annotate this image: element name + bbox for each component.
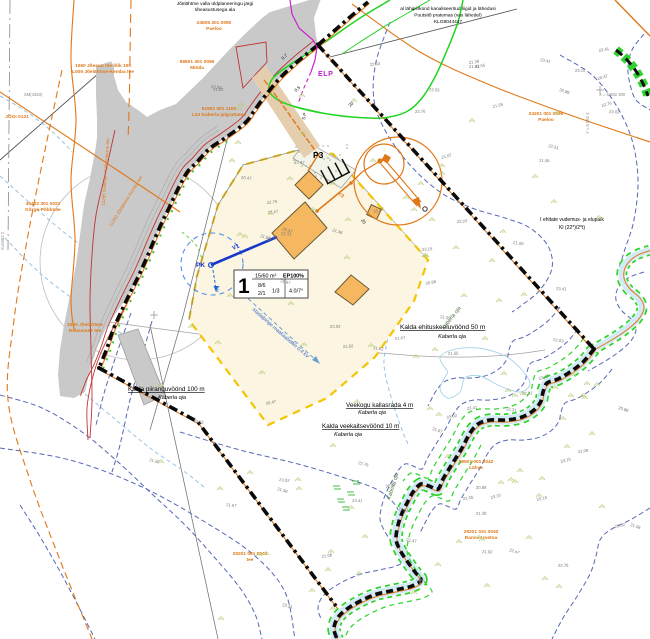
svg-text:23.41: 23.41 bbox=[352, 498, 363, 503]
svg-text:21.67: 21.67 bbox=[226, 502, 238, 508]
svg-text:21.92: 21.92 bbox=[343, 343, 354, 349]
svg-text:tiheasustusega ala: tiheasustusega ala bbox=[195, 7, 235, 13]
svg-text:Rebasmäe tee: Rebasmäe tee bbox=[69, 328, 102, 334]
svg-text:21.67: 21.67 bbox=[395, 335, 407, 341]
svg-text:P3: P3 bbox=[313, 150, 324, 160]
svg-text:22.03: 22.03 bbox=[457, 218, 468, 224]
svg-text:29201 031 0040: 29201 031 0040 bbox=[464, 529, 499, 535]
svg-text:1060 Jõesuu tee lõik 100: 1060 Jõesuu tee lõik 100 bbox=[75, 63, 131, 69]
svg-text:Kaberla oja: Kaberla oja bbox=[358, 410, 386, 416]
svg-text:21.67: 21.67 bbox=[441, 152, 453, 160]
svg-text:1: 1 bbox=[238, 275, 250, 298]
svg-text:20.88: 20.88 bbox=[618, 405, 630, 413]
svg-text:21.67: 21.67 bbox=[432, 426, 444, 434]
svg-text:23.02: 23.02 bbox=[609, 109, 620, 114]
svg-text:36402 301 0022: 36402 301 0022 bbox=[26, 201, 61, 207]
svg-text:Kaberla oja: Kaberla oja bbox=[438, 334, 466, 340]
svg-text:b/o: b/o bbox=[215, 286, 220, 293]
svg-text:JÕGI 0131: JÕGI 0131 bbox=[5, 113, 29, 120]
svg-text:Kaberla oja: Kaberla oja bbox=[158, 395, 186, 401]
svg-text:23.15: 23.15 bbox=[575, 67, 586, 73]
svg-text:8/6: 8/6 bbox=[258, 283, 266, 289]
svg-text:KI (22*)/2*t): KI (22*)/2*t) bbox=[559, 225, 585, 231]
svg-text:X = 6 582 300: X = 6 582 300 bbox=[599, 92, 626, 97]
svg-text:2050 Jõelähtme: 2050 Jõelähtme bbox=[67, 322, 103, 328]
svg-text:23.02: 23.02 bbox=[330, 324, 341, 329]
svg-text:al lähipiirkond kanaliseeritud: al lähipiirkond kanaliseeritud liigid ja… bbox=[400, 6, 495, 12]
svg-text:KLG8044447: KLG8044447 bbox=[434, 19, 463, 25]
svg-text:22.31: 22.31 bbox=[522, 390, 533, 396]
svg-text:21.08: 21.08 bbox=[321, 552, 333, 559]
svg-text:22.31: 22.31 bbox=[281, 231, 292, 236]
svg-text:PK: PK bbox=[196, 262, 205, 269]
svg-text:Y = 6 582 4: Y = 6 582 4 bbox=[585, 112, 590, 134]
svg-text:29201 001 0043: 29201 001 0043 bbox=[233, 551, 268, 557]
svg-text:22.76: 22.76 bbox=[558, 563, 569, 568]
svg-text:23.41: 23.41 bbox=[556, 286, 567, 291]
svg-text:22.47: 22.47 bbox=[509, 547, 521, 555]
svg-text:21.08: 21.08 bbox=[513, 240, 525, 246]
svg-text:Kalda piiranguvöönd 100 m: Kalda piiranguvöönd 100 m bbox=[128, 386, 205, 393]
svg-text:X=6582 2: X=6582 2 bbox=[0, 231, 5, 250]
svg-text:23.41: 23.41 bbox=[540, 57, 552, 64]
svg-text:2/1: 2/1 bbox=[258, 291, 266, 297]
svg-text:23.02: 23.02 bbox=[614, 522, 626, 529]
svg-text:Jõelähtme valla üldplaneeringu: Jõelähtme valla üldplaneeringu järgi bbox=[177, 1, 254, 7]
svg-text:24505 301 0090: 24505 301 0090 bbox=[197, 20, 232, 26]
svg-text:S P: S P bbox=[301, 112, 307, 120]
svg-text:SM(4383): SM(4383) bbox=[24, 92, 43, 97]
svg-text:23.15: 23.15 bbox=[536, 495, 548, 502]
svg-text:22.31: 22.31 bbox=[282, 602, 294, 609]
svg-text:21.38: 21.38 bbox=[149, 457, 161, 465]
svg-text:23.15: 23.15 bbox=[422, 246, 434, 252]
svg-text:1/3: 1/3 bbox=[272, 289, 280, 295]
svg-text:0,5: 0,5 bbox=[293, 85, 301, 93]
svg-text:22.76: 22.76 bbox=[601, 100, 613, 108]
svg-text:Puutsitõ pratemas (vas lähedel: Puutsitõ pratemas (vas lähedel) bbox=[414, 13, 482, 19]
svg-text:21.55: 21.55 bbox=[448, 351, 459, 356]
svg-text:21.08: 21.08 bbox=[630, 522, 642, 530]
svg-text:22.03: 22.03 bbox=[370, 61, 382, 67]
svg-text:23.15: 23.15 bbox=[490, 492, 502, 500]
svg-text:20.88: 20.88 bbox=[211, 84, 223, 90]
svg-text:88501 301 0096: 88501 301 0096 bbox=[180, 59, 215, 65]
svg-text:23.15: 23.15 bbox=[560, 456, 572, 464]
svg-text:21.92: 21.92 bbox=[482, 549, 493, 555]
svg-text:Kaberla oja: Kaberla oja bbox=[334, 432, 362, 438]
svg-text:21.55: 21.55 bbox=[463, 495, 475, 501]
svg-text:21.55: 21.55 bbox=[440, 314, 452, 321]
svg-text:Paeloo: Paeloo bbox=[206, 26, 222, 32]
svg-text:22.03: 22.03 bbox=[553, 337, 565, 344]
svg-text:21.55: 21.55 bbox=[492, 102, 504, 109]
svg-text:I ehitate vudemus- ja elupaik: I ehitate vudemus- ja elupaik bbox=[540, 217, 604, 223]
svg-text:Paeloo: Paeloo bbox=[538, 117, 554, 123]
svg-text:15/60 m²: 15/60 m² bbox=[255, 274, 276, 280]
svg-text:23.41: 23.41 bbox=[598, 46, 610, 53]
svg-text:81501 001 1100: 81501 001 1100 bbox=[202, 106, 237, 112]
svg-text:23.15: 23.15 bbox=[193, 418, 205, 425]
svg-text:L005 Jõelähtme-Kemba tee: L005 Jõelähtme-Kemba tee bbox=[72, 69, 134, 75]
svg-text:Lähve: Lähve bbox=[469, 465, 483, 471]
svg-text:22.31: 22.31 bbox=[548, 143, 560, 150]
svg-text:21.38: 21.38 bbox=[277, 486, 289, 494]
svg-text:20.88: 20.88 bbox=[476, 485, 487, 490]
svg-text:4.0/7°: 4.0/7° bbox=[289, 289, 303, 295]
svg-text:Müüla: Müüla bbox=[190, 65, 204, 71]
svg-text:20.47: 20.47 bbox=[241, 175, 252, 181]
svg-text:Kalda veekaitsevöönd 10 m: Kalda veekaitsevöönd 10 m bbox=[322, 423, 399, 430]
svg-text:22.31: 22.31 bbox=[506, 406, 518, 413]
svg-text:ELP: ELP bbox=[318, 69, 333, 78]
svg-text:21.08: 21.08 bbox=[578, 448, 590, 454]
svg-text:22.76: 22.76 bbox=[358, 460, 370, 468]
svg-text:23.02: 23.02 bbox=[279, 477, 291, 483]
svg-text:20.47: 20.47 bbox=[597, 73, 609, 81]
svg-text:Kõrge-Põldmäe: Kõrge-Põldmäe bbox=[25, 207, 61, 213]
svg-text:22.76: 22.76 bbox=[415, 109, 426, 114]
svg-text:21.08: 21.08 bbox=[539, 158, 550, 163]
svg-text:20.88: 20.88 bbox=[425, 279, 437, 286]
svg-text:21.55: 21.55 bbox=[474, 62, 486, 69]
svg-text:Veekogu kallasrada 4 m: Veekogu kallasrada 4 m bbox=[346, 402, 413, 409]
svg-text:23.02: 23.02 bbox=[446, 413, 458, 420]
svg-text:21.38: 21.38 bbox=[476, 511, 487, 516]
svg-text:20.88: 20.88 bbox=[559, 87, 571, 95]
svg-text:29501 001 0042: 29501 001 0042 bbox=[459, 459, 494, 465]
svg-text:tee: tee bbox=[247, 557, 254, 563]
svg-text:L03 Kaberla jalgrattatee: L03 Kaberla jalgrattatee bbox=[192, 112, 246, 118]
svg-text:22.03: 22.03 bbox=[429, 87, 440, 93]
